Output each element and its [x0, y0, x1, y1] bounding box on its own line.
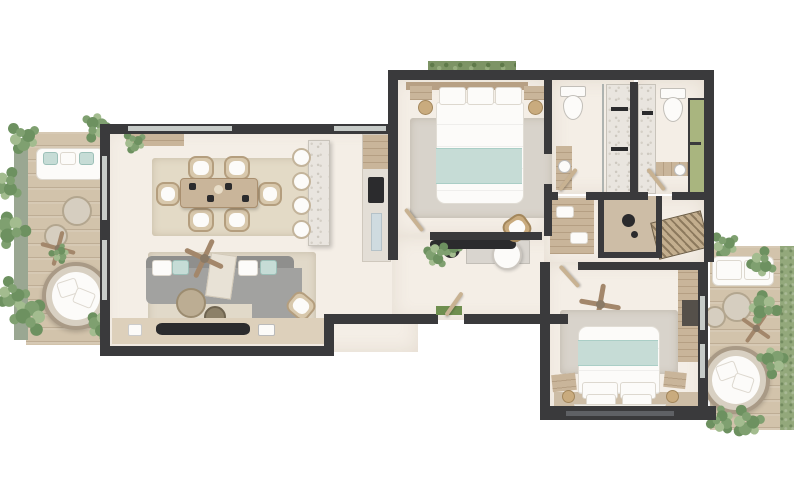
desk: [430, 240, 516, 249]
wall: [324, 314, 438, 324]
window: [128, 126, 232, 131]
wall: [540, 262, 550, 416]
potted-plant: [437, 249, 444, 256]
bar-stool: [292, 172, 311, 191]
basin: [674, 164, 686, 176]
bedside-lamp: [562, 390, 575, 403]
coffee-table: [176, 288, 206, 318]
wall: [544, 192, 558, 200]
wall: [100, 346, 334, 356]
floor-plan: [0, 0, 800, 500]
sideboard-counter: [112, 318, 330, 344]
wall: [698, 262, 708, 414]
wardrobe-bench: [550, 198, 594, 254]
nightstand: [410, 86, 432, 100]
oven: [368, 177, 384, 203]
dining-table: [180, 178, 258, 208]
ceiling-fan: [738, 310, 773, 345]
tall-kitchen-cabinet: [362, 134, 391, 262]
dining-chair: [188, 156, 214, 180]
sofa-cushion: [716, 260, 742, 280]
bench: [551, 373, 577, 392]
shower-glass: [602, 84, 604, 192]
sofa-cushion: [744, 260, 770, 280]
shower-fixture: [642, 111, 653, 115]
dining-chair: [258, 182, 282, 206]
ceiling-fan: [39, 229, 76, 266]
wall: [464, 314, 568, 324]
wall: [586, 192, 648, 200]
basin: [558, 160, 571, 173]
sofa-pillow: [79, 152, 94, 165]
pendant-lamp: [528, 100, 543, 115]
dining-chair: [224, 156, 250, 180]
wall: [672, 192, 714, 200]
wall: [598, 252, 662, 258]
bench: [156, 323, 250, 335]
shower-fixture: [611, 107, 628, 111]
wall: [656, 196, 662, 256]
vanity: [656, 162, 688, 176]
wall: [388, 70, 398, 260]
nightstand: [524, 86, 546, 100]
dining-chair: [224, 208, 250, 232]
plant: [16, 128, 25, 137]
bedside-lamp: [666, 390, 679, 403]
fridge: [371, 213, 382, 251]
plant: [719, 237, 727, 245]
bar-stool: [292, 196, 311, 215]
shower-fixture: [611, 147, 628, 151]
sofa-pillow: [43, 152, 58, 165]
plant: [129, 135, 135, 141]
dining-chair: [188, 208, 214, 232]
bar-stool: [292, 220, 311, 239]
bench: [663, 371, 687, 389]
wall: [430, 232, 542, 240]
window: [334, 126, 386, 131]
sink: [258, 324, 275, 336]
terrace-door: [700, 296, 705, 330]
double-bed: [578, 326, 660, 414]
wall: [704, 70, 714, 262]
wall: [630, 82, 638, 194]
rain-shower-head: [622, 214, 635, 227]
planter-strip: [14, 138, 28, 340]
wall: [578, 262, 702, 270]
bar-stool: [292, 148, 311, 167]
ceiling-fan: [182, 236, 226, 280]
window: [102, 156, 107, 220]
wall: [598, 196, 604, 256]
pouf: [62, 196, 92, 226]
pendant-lamp: [418, 100, 433, 115]
window: [102, 240, 107, 300]
terrace-door: [700, 344, 705, 378]
dining-chair: [156, 182, 180, 206]
window-wall-glazing: [566, 411, 674, 416]
sofa-cushion: [60, 152, 76, 165]
kitchen-island: [308, 140, 330, 246]
double-bed: [436, 84, 524, 204]
round-daybed: [702, 346, 770, 414]
wall: [544, 78, 552, 154]
